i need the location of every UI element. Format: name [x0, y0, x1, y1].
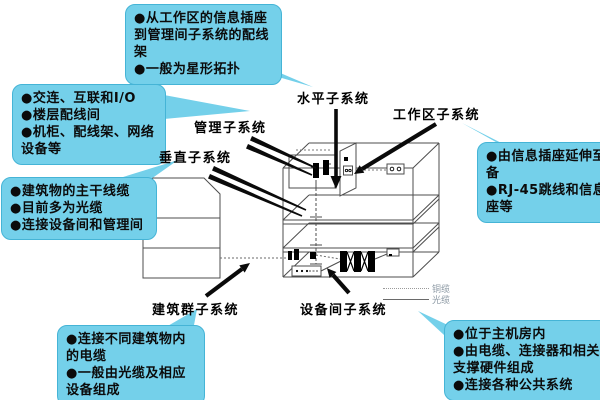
callout-text: ●连接各种公共系统 [453, 377, 600, 394]
arrow-backbone-subsystem [208, 166, 306, 217]
wall-partition [340, 143, 356, 196]
callout-text: ●由信息插座延伸至设备 [486, 148, 600, 182]
callout-text: ●楼层配线间 [21, 107, 157, 124]
fiber-cable-line [383, 299, 429, 300]
cable-splice [354, 251, 361, 272]
label-horizontal-subsystem: 水平子系统 [297, 88, 370, 107]
legend-row-fiber: 光缆 [383, 294, 450, 305]
cable-splice [340, 251, 347, 272]
patch-panel [313, 163, 319, 178]
callout-tail-management [164, 95, 250, 119]
callout-management-subsystem: ●交连、互联和I/O ●楼层配线间 ●机柜、配线架、网络设备等 [12, 84, 166, 165]
callout-text: ●连接设备间和管理间 [10, 217, 148, 234]
callout-text: ●由电缆、连接器和相关支撑硬件组成 [453, 343, 600, 377]
cable-legend: 铜缆 光缆 [383, 283, 450, 305]
callout-backbone-subsystem: ●建筑物的主干线缆 ●目前多为光缆 ●连接设备间和管理间 [1, 177, 157, 240]
callout-horizontal-subsystem: ●从工作区的信息插座到管理间子系统的配线架 ●一般为星形拓扑 [125, 4, 282, 85]
fiber-cable-label: 光缆 [432, 293, 450, 306]
callout-text: ●建筑物的主干线缆 [10, 183, 148, 200]
callout-text: ●机柜、配线架、网络设备等 [21, 124, 157, 158]
label-management-subsystem: 管理子系统 [194, 117, 267, 136]
arrow-management-subsystem [246, 136, 316, 176]
callout-equipment-subsystem: ●位于主机房内 ●由电缆、连接器和相关支撑硬件组成 ●连接各种公共系统 [444, 320, 600, 400]
cable-splice [368, 251, 375, 272]
arrow-equipment-subsystem [327, 268, 349, 293]
copper-cable-line [383, 288, 429, 289]
callout-text: ●连接不同建筑物内的电缆 [66, 331, 196, 365]
label-equipment-subsystem: 设备间子系统 [300, 299, 387, 318]
patch-panel [323, 160, 329, 175]
label-campus-subsystem: 建筑群子系统 [152, 299, 239, 318]
callout-campus-subsystem: ●连接不同建筑物内的电缆 ●一般由光缆及相应设备组成 [57, 325, 205, 400]
diagram-canvas: ●从工作区的信息插座到管理间子系统的配线架 ●一般为星形拓扑 ●交连、互联和I/… [0, 0, 600, 400]
callout-text: ●交连、互联和I/O [21, 90, 157, 107]
callout-text: ●一般为星形拓扑 [134, 61, 273, 78]
callout-text: ●位于主机房内 [453, 326, 600, 343]
equipment-room-devices [288, 249, 399, 276]
callout-text: ●一般由光缆及相应设备组成 [66, 365, 196, 399]
label-backbone-subsystem: 垂直子系统 [159, 147, 232, 166]
callout-text: ●RJ-45跳线和信息插座等 [486, 182, 600, 216]
callout-work-area-subsystem: ●由信息插座延伸至设备 ●RJ-45跳线和信息插座等 [477, 142, 600, 223]
label-work-area-subsystem: 工作区子系统 [393, 104, 480, 123]
callout-text: ●从工作区的信息插座到管理间子系统的配线架 [134, 10, 273, 61]
arrow-horizontal-subsystem [331, 109, 342, 189]
callout-text: ●目前多为光缆 [10, 200, 148, 217]
